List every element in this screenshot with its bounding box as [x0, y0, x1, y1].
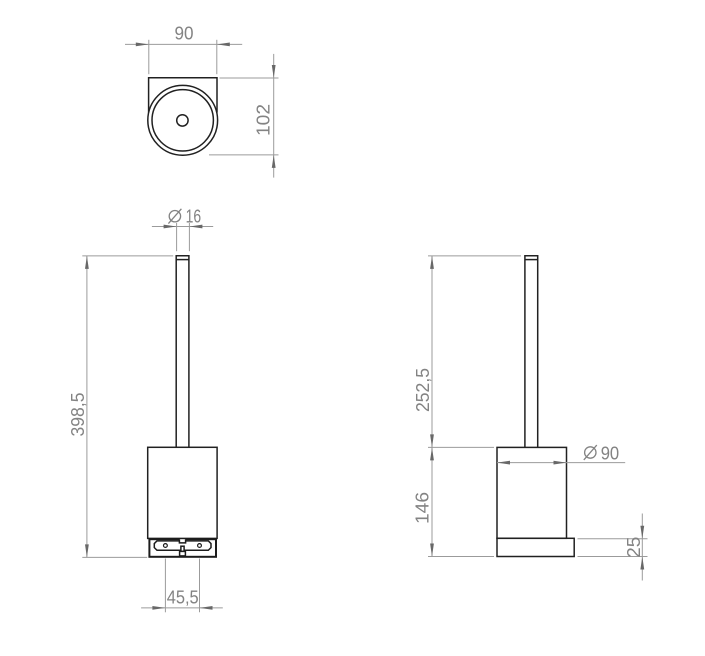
svg-text:45,5: 45,5: [167, 587, 199, 607]
svg-text:252,5: 252,5: [413, 368, 433, 412]
svg-text:102: 102: [253, 104, 273, 136]
svg-text:90: 90: [601, 444, 620, 464]
svg-text:16: 16: [186, 207, 202, 227]
svg-text:146: 146: [413, 492, 433, 524]
svg-text:25: 25: [624, 537, 644, 558]
svg-text:90: 90: [175, 24, 194, 44]
svg-text:398,5: 398,5: [68, 393, 88, 437]
